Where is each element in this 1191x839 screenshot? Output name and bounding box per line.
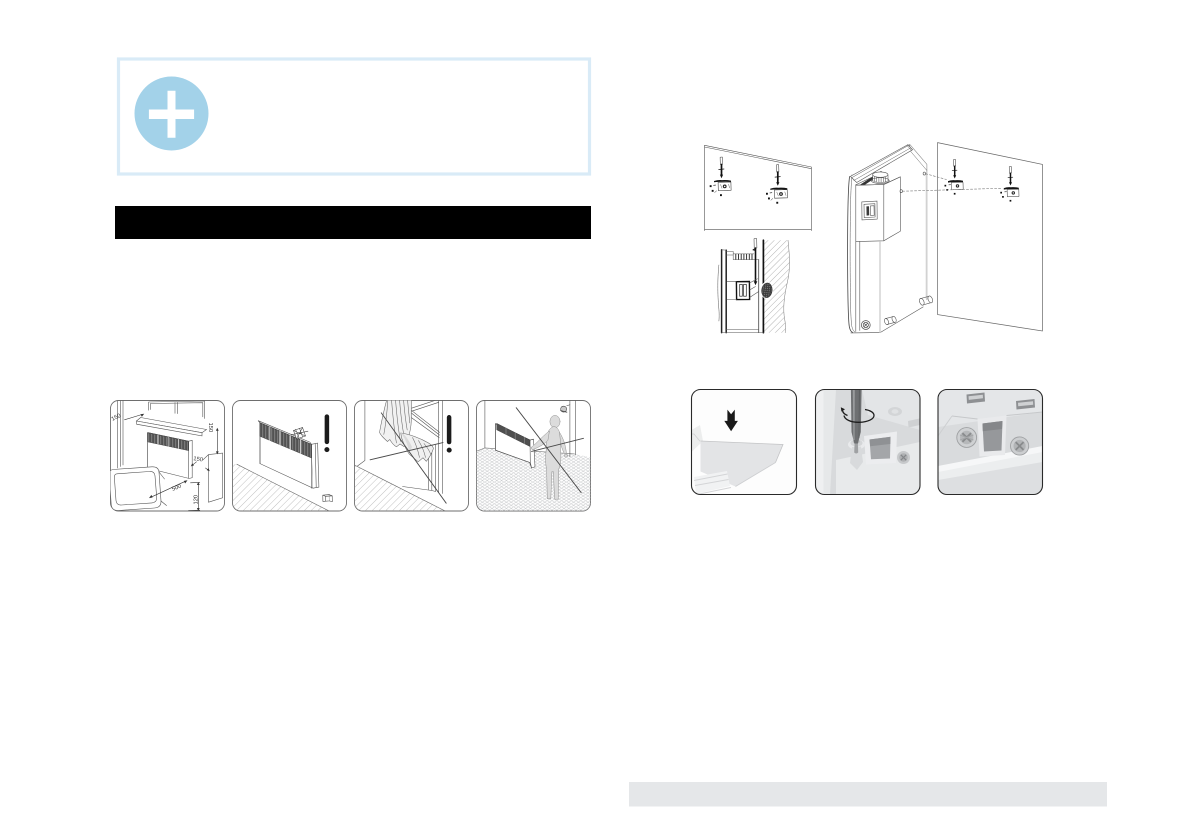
- svg-text:120: 120: [194, 495, 200, 505]
- svg-text:150: 150: [207, 423, 213, 433]
